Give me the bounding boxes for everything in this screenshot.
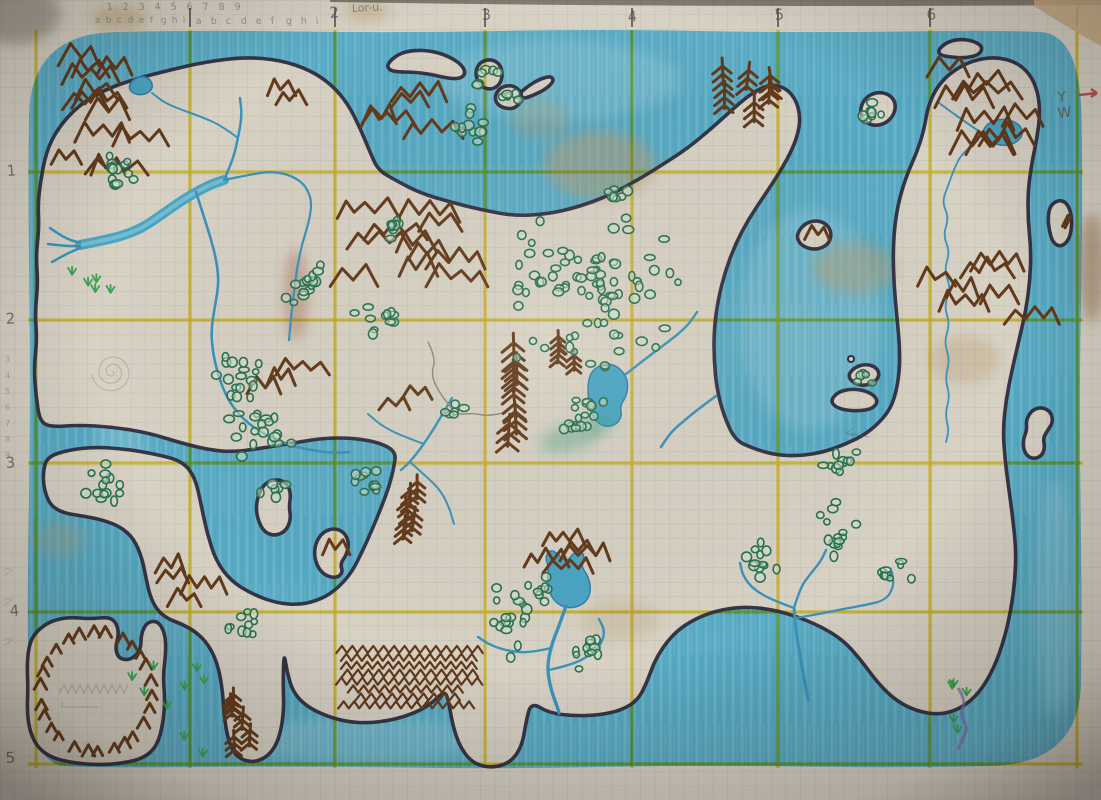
photo-of-hand-drawn-map: Hand-drawn fantasy map on graph paper (p… xyxy=(0,0,1101,800)
photo-vignette xyxy=(0,0,1101,800)
map-canvas: 23456712345123456789abcdefghiabcdefghi34… xyxy=(0,0,1101,800)
